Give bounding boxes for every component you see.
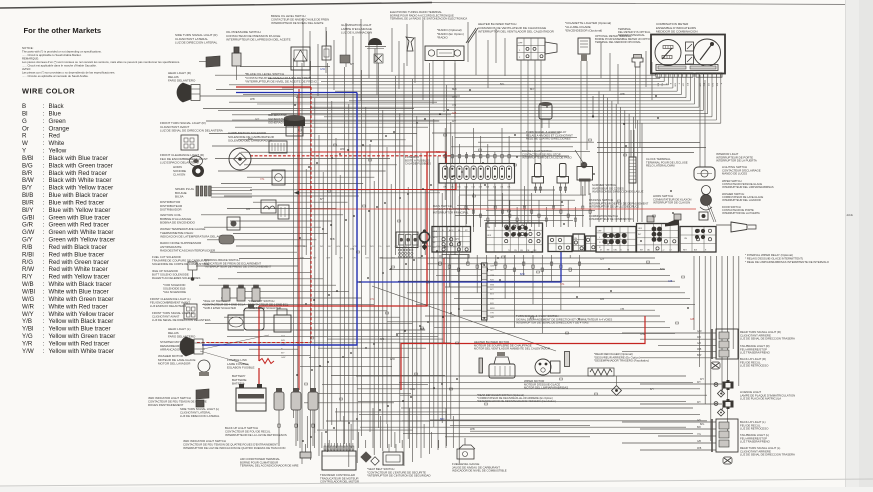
svg-text:G/W: G/W <box>320 68 326 71</box>
svg-text:Blue: Blue <box>49 110 62 117</box>
svg-text:*10A SOLENOIDE: *10A SOLENOIDE <box>163 290 186 294</box>
svg-text:G/Y: G/Y <box>255 118 260 121</box>
svg-text:INTERRUPTEUR DE LAPRESION DEL: INTERRUPTEUR DE LAPRESION DEL ACEITE <box>226 38 291 42</box>
svg-text::: : <box>43 340 45 347</box>
svg-text:Bl/B: Bl/B <box>22 192 33 199</box>
svg-text:W/R: W/R <box>22 303 35 310</box>
svg-text:LUZ DE SENAL DE DIRECCION DELA: LUZ DE SENAL DE DIRECCION DELANTERA <box>160 129 223 133</box>
svg-text:WIRE COLOR: WIRE COLOR <box>22 87 75 96</box>
svg-text:B/G: B/G <box>361 246 365 248</box>
svg-text:ACC: ACC <box>449 229 454 232</box>
svg-text:*DESEMPANADOR DE DESINTEGRADOR: *DESEMPANADOR DE DESINTEGRADOR TRASERO (… <box>477 399 556 403</box>
svg-text:B/W: B/W <box>386 246 390 248</box>
svg-text:G/Y: G/Y <box>600 258 605 261</box>
svg-text:Y/G: Y/G <box>281 336 285 338</box>
svg-text::: : <box>43 162 45 169</box>
svg-text:B/G: B/G <box>490 294 494 296</box>
svg-text:Green with White tracer: Green with White tracer <box>49 229 114 236</box>
svg-text:Y/G: Y/G <box>378 246 382 248</box>
svg-text:Bl/B: Bl/B <box>452 88 457 91</box>
svg-text:MOTOR DEL VENTILADOR AMBIENTE: MOTOR DEL VENTILADOR AMBIENTE DEL CALENT… <box>474 347 550 351</box>
svg-text:ACC: ACC <box>433 236 438 239</box>
svg-text:INTERRUPTEUR DEL LIMPIAPARABRI: INTERRUPTEUR DEL LIMPIAPARABRISAS <box>722 185 774 189</box>
svg-text:R/G: R/G <box>22 259 33 266</box>
svg-text:B/G: B/G <box>500 83 504 86</box>
svg-text:Blue with Yellow tracer: Blue with Yellow tracer <box>49 207 111 214</box>
svg-text:G/R: G/R <box>418 258 422 260</box>
svg-text::: : <box>43 222 45 229</box>
svg-text:INVERSION DE DIRECCION DE LA L: INVERSION DE DIRECCION DE LA LUZ <box>592 190 644 194</box>
svg-text::: : <box>43 251 45 258</box>
svg-text:G/B: G/B <box>668 280 673 283</box>
svg-text:Bl/R: Bl/R <box>22 199 34 206</box>
svg-text:Y/B: Y/B <box>490 298 494 300</box>
svg-text:BOBINA DE ENCENDIDO: BOBINA DE ENCENDIDO <box>160 221 196 225</box>
svg-text:Y/R: Y/R <box>490 313 494 315</box>
svg-text:B/Y: B/Y <box>22 185 32 192</box>
svg-text:INTERRUPTOR DE LA PUERTA: INTERRUPTOR DE LA PUERTA <box>716 159 757 163</box>
svg-text::: : <box>43 133 45 140</box>
svg-text::: : <box>43 199 45 206</box>
svg-text:Red with Black tracer: Red with Black tracer <box>49 244 107 251</box>
svg-text:B/G: B/G <box>22 162 33 169</box>
svg-text:*DESEMPANADOR TRASERO (Faculta: *DESEMPANADOR TRASERO (Facultativo) <box>594 359 649 363</box>
svg-text:Green with Yellow tracer: Green with Yellow tracer <box>49 237 116 244</box>
svg-text:R/Y: R/Y <box>700 378 705 381</box>
svg-text::: : <box>43 155 45 162</box>
svg-text::: : <box>43 110 45 117</box>
svg-text:W/G: W/G <box>22 296 35 303</box>
svg-text:LUZ TRASERA/FRENO: LUZ TRASERA/FRENO <box>740 440 771 444</box>
svg-text:Red with Green tracer: Red with Green tracer <box>49 259 110 266</box>
svg-text:Red with Yellow tracer: Red with Yellow tracer <box>49 274 110 281</box>
svg-text:W/B: W/B <box>22 281 34 288</box>
svg-text:RELE DE CUATRO DIRECCIONES: RELE DE CUATRO DIRECCIONES <box>526 137 571 141</box>
svg-text:LUZ DE DIRECCION LATERAL: LUZ DE DIRECCION LATERAL <box>175 41 218 45</box>
svg-text:Yellow with Green tracer: Yellow with Green tracer <box>49 333 116 340</box>
svg-text:G/Bl: G/Bl <box>22 214 34 221</box>
svg-text:Y/B: Y/B <box>22 318 32 325</box>
svg-text:OFF: OFF <box>487 235 492 237</box>
svg-text:TL: TL <box>508 250 510 252</box>
svg-text:Yellow with Black tracer: Yellow with Black tracer <box>49 318 114 325</box>
svg-text:R/Bl: R/Bl <box>22 251 34 258</box>
svg-text:G/W: G/W <box>410 388 416 391</box>
svg-text::: : <box>43 214 45 221</box>
svg-text:B/G: B/G <box>703 83 705 87</box>
svg-text:RELO LATERAL/OMNI: RELO LATERAL/OMNI <box>646 164 675 168</box>
svg-text:R/B: R/B <box>22 244 32 251</box>
svg-text:Bl/B: Bl/B <box>330 238 335 241</box>
svg-text:Or: Or <box>22 125 29 132</box>
svg-text:MEDIDOR DE COMBINACION: MEDIDOR DE COMBINACION <box>656 30 698 34</box>
svg-text:INDICACION DE LATEMPERATURA DE: INDICACION DE LATEMPERATURA DEL AGUA <box>160 235 225 239</box>
svg-text:INTERRUPTOR DE LA PUERTA: INTERRUPTOR DE LA PUERTA <box>722 211 760 215</box>
svg-text:TERMINAL DE LA RADIO DE SINTON: TERMINAL DE LA RADIO DE SINTONIZACION EL… <box>390 17 467 21</box>
svg-text:Y/B: Y/B <box>620 308 624 311</box>
svg-text:G/B: G/B <box>490 317 494 319</box>
svg-text:Bl: Bl <box>22 110 28 117</box>
svg-text::: : <box>43 281 45 288</box>
svg-text:INTERRUPTEUR DE LA LUZ DE PASO: INTERRUPTEUR DE LA LUZ DE PASO <box>522 156 573 160</box>
svg-text:MOTOR DEL LAVADOR: MOTOR DEL LAVADOR <box>158 362 191 366</box>
svg-text:Y/B: Y/B <box>350 248 354 251</box>
svg-text:R/Y: R/Y <box>22 274 32 281</box>
svg-text:R/Y: R/Y <box>697 402 701 404</box>
svg-text:CONTACTEUR DE NIVEAU D'HUILE D: CONTACTEUR DE NIVEAU D'HUILE DE FREIN <box>271 17 329 21</box>
svg-text:B/Y: B/Y <box>281 353 285 355</box>
svg-text:Orange: Orange <box>49 125 70 132</box>
svg-text:W/B: W/B <box>403 246 407 248</box>
svg-text:R/B: R/B <box>697 337 701 339</box>
svg-text::: : <box>43 177 45 184</box>
svg-text:MANDO DE LUCES: MANDO DE LUCES <box>722 172 747 176</box>
svg-text:G/Y: G/Y <box>480 263 485 266</box>
svg-text:Blue with Red tracer: Blue with Red tracer <box>49 199 105 206</box>
svg-text:TERMINAL DEL ACONDICIONADOR DE: TERMINAL DEL ACONDICIONADOR DE AIRE <box>240 464 299 468</box>
svg-text:*INTERRUPTEUR DE FRENO DE STAT: *INTERRUPTEUR DE FRENO DE STATIONNEMENT <box>204 265 271 269</box>
svg-text:G/R: G/R <box>22 222 34 229</box>
svg-text::: : <box>43 170 45 177</box>
svg-text:FARO DELANTERO: FARO DELANTERO <box>168 79 196 83</box>
svg-text:INTERRUPTOR DE CLAXON: INTERRUPTOR DE CLAXON <box>653 201 690 205</box>
svg-text:INTERRUPTEUR DEL LAVADOR: INTERRUPTEUR DEL LAVADOR <box>722 198 761 202</box>
svg-text:R/Y: R/Y <box>455 238 460 241</box>
svg-text:INTERRUPTOR DE LUZ DE INDICACI: INTERRUPTOR DE LUZ DE INDICACION DE QUAT… <box>183 446 285 450</box>
svg-text:GENERADOR CA: GENERADOR CA <box>268 121 292 125</box>
svg-text:Yellow with Blue tracer: Yellow with Blue tracer <box>49 326 111 333</box>
svg-text:White with Blue tracer: White with Blue tracer <box>49 289 109 296</box>
svg-text:G/B: G/B <box>697 343 701 345</box>
svg-text:Red: Red <box>49 133 61 140</box>
svg-text:*INTERRUPTOR DE CINTURON DE SE: *INTERRUPTOR DE CINTURON DE SEGURIDAD <box>367 474 431 478</box>
svg-text:LUZ TRASERA/FRENO: LUZ TRASERA/FRENO <box>740 351 771 355</box>
svg-text:White with Green tracer: White with Green tracer <box>49 296 114 303</box>
svg-text:IG: IG <box>433 242 436 244</box>
svg-text:Black with White tracer: Black with White tracer <box>49 177 112 184</box>
svg-text:BRAKE OIL LEVEL SWITCH: BRAKE OIL LEVEL SWITCH <box>271 14 306 18</box>
svg-text:W/R: W/R <box>390 358 395 361</box>
svg-text:LUZ DE SENAL DE DIRECCION DELA: LUZ DE SENAL DE DIRECCION DELANTERA <box>152 318 211 322</box>
svg-text:Black with Yellow tracer: Black with Yellow tracer <box>49 185 114 192</box>
svg-text::: : <box>43 296 45 303</box>
svg-text:For the other Markets: For the other Markets <box>24 26 102 35</box>
svg-text:White with Yellow tracer: White with Yellow tracer <box>49 311 114 318</box>
svg-text::: : <box>43 348 45 355</box>
svg-text::: : <box>43 244 45 251</box>
svg-text:CAJA DE FUSIBLES: CAJA DE FUSIBLES <box>405 162 431 166</box>
svg-text:LUZ DE SENAL DE DIRECCION TRAS: LUZ DE SENAL DE DIRECCION TRASERA <box>740 453 795 457</box>
svg-text:Bl/Y: Bl/Y <box>530 88 535 91</box>
svg-text:INTERRUPTEUR DE COMBINATION: INTERRUPTEUR DE COMBINATION <box>589 217 633 221</box>
svg-text:...... Circuit est applicable: ...... Circuit est applicable dans le ma… <box>22 64 97 68</box>
svg-text::: : <box>43 289 45 296</box>
svg-text:R/W: R/W <box>22 266 34 273</box>
svg-text:Y/G: Y/G <box>370 298 374 301</box>
svg-text:Bl/Y: Bl/Y <box>440 418 445 421</box>
svg-text:Yellow with Red tracer: Yellow with Red tracer <box>49 340 110 347</box>
svg-text:G/B: G/B <box>690 318 695 321</box>
svg-text:...... Circuito es aplicable a: ...... Circuito es aplicable al mercado … <box>22 74 89 78</box>
svg-text:Y/R: Y/R <box>22 340 33 347</box>
svg-text:*INTERRUPTEUR DE NIVEL DE ACEI: *INTERRUPTEUR DE NIVEL DE ACEITE DE FREN… <box>245 80 318 84</box>
svg-text:R/B: R/B <box>600 298 605 301</box>
svg-text::: : <box>43 118 45 125</box>
svg-text::: : <box>43 303 45 310</box>
svg-text:B/W: B/W <box>405 258 409 260</box>
svg-text:W/R: W/R <box>379 258 383 260</box>
svg-text:Black: Black <box>49 103 65 110</box>
svg-text:G/W: G/W <box>640 333 646 336</box>
svg-text:R/B: R/B <box>246 208 251 211</box>
svg-text:+1: +1 <box>655 250 657 252</box>
svg-text:Bl/B: Bl/B <box>420 328 425 331</box>
svg-text::: : <box>43 185 45 192</box>
svg-text:R: R <box>22 133 27 140</box>
svg-text:G/R: G/R <box>395 246 399 248</box>
svg-text:W/R: W/R <box>453 246 457 248</box>
svg-text:R/Y: R/Y <box>490 289 494 291</box>
svg-text:Y/G: Y/G <box>697 434 701 436</box>
svg-text:W/B: W/B <box>300 258 304 260</box>
svg-text:G/Y: G/Y <box>22 237 33 244</box>
svg-text::: : <box>43 140 45 147</box>
svg-text:* RELE DE LIMPIAPARABRISAS INT: * RELE DE LIMPIAPARABRISAS INTERMITENTE … <box>745 260 830 264</box>
svg-text::: : <box>43 266 45 273</box>
svg-text:RADIOESTATICASCHUNTERDRUCKER: RADIOESTATICASCHUNTERDRUCKER <box>160 249 216 253</box>
svg-text:G/B: G/B <box>697 441 701 443</box>
svg-text:B/W: B/W <box>660 268 665 271</box>
svg-text:Black with Blue tracer: Black with Blue tracer <box>49 155 109 162</box>
svg-text:G/W: G/W <box>420 246 424 248</box>
svg-text::: : <box>43 125 45 132</box>
svg-text:MOTOR DEL LIMPIAPARABRISAS: MOTOR DEL LIMPIAPARABRISAS <box>524 386 568 390</box>
svg-text:DEL: DEL <box>614 250 618 252</box>
svg-text:BUJIA: BUJIA <box>175 195 184 199</box>
svg-text:Yellow with White tracer: Yellow with White tracer <box>49 348 114 355</box>
svg-text:CLAXON: CLAXON <box>173 173 185 177</box>
svg-text:B/W: B/W <box>22 177 34 184</box>
svg-text:G/Y: G/Y <box>697 420 701 422</box>
svg-text:LUZ DE PLACA DE MATRICULA: LUZ DE PLACA DE MATRICULA <box>740 397 781 401</box>
svg-text:Y: Y <box>22 148 26 155</box>
svg-text:Y/G: Y/G <box>260 178 264 181</box>
svg-text:B/Y: B/Y <box>320 198 324 201</box>
svg-text:Y/R: Y/R <box>353 246 357 248</box>
svg-text:B/Y: B/Y <box>350 63 354 66</box>
svg-text:W/B: W/B <box>490 284 495 286</box>
svg-text:TENSION INTEGRAAL: TENSION INTEGRAAL <box>618 33 646 37</box>
svg-text:B/R: B/R <box>697 427 701 429</box>
svg-text:Red with Blue tracer: Red with Blue tracer <box>49 251 105 258</box>
svg-text::: : <box>43 333 45 340</box>
svg-text:W/B: W/B <box>431 258 435 260</box>
svg-text:TERMINAL DEL MEDIDOR OPCIONAL: TERMINAL DEL MEDIDOR OPCIONAL <box>595 40 641 44</box>
svg-text:B/Y: B/Y <box>650 388 654 391</box>
svg-text:LUZ DE DIRECCION LATERAL: LUZ DE DIRECCION LATERAL <box>180 414 220 418</box>
svg-text::: : <box>43 259 45 266</box>
svg-text:B/R: B/R <box>490 303 494 305</box>
svg-text:Black with Green tracer: Black with Green tracer <box>49 162 113 169</box>
svg-text:OFF: OFF <box>518 43 523 45</box>
svg-text:W/R: W/R <box>340 148 345 151</box>
svg-text:B: B <box>22 103 26 110</box>
svg-text::: : <box>43 148 45 155</box>
svg-text:R/B: R/B <box>436 151 440 154</box>
svg-text:Y/B: Y/B <box>452 104 456 107</box>
svg-text:INTERRUPTOR DE LA LUZ DE CRUCE: INTERRUPTOR DE LA LUZ DE CRUCE <box>589 205 639 209</box>
svg-text:W/B: W/B <box>697 349 702 351</box>
svg-text:W/Y: W/Y <box>22 311 34 318</box>
svg-text:INTERRUPTOR DEL VENTILADOR DEL: INTERRUPTOR DEL VENTILADOR DEL CALENTADO… <box>478 30 555 34</box>
svg-text:W/B: W/B <box>620 93 625 96</box>
svg-text:W/B: W/B <box>470 428 475 431</box>
svg-text:Bl/Y: Bl/Y <box>22 207 33 214</box>
svg-text:Green: Green <box>49 118 67 125</box>
svg-text:B/G: B/G <box>366 258 370 260</box>
svg-text:LUZ DE SENAL DE DIRECCION TRAS: LUZ DE SENAL DE DIRECCION TRASERA <box>740 337 795 341</box>
svg-text:W/B: W/B <box>697 448 702 450</box>
svg-text:Green with Blue tracer: Green with Blue tracer <box>49 214 111 221</box>
svg-text:G/Y: G/Y <box>490 270 494 272</box>
svg-text:G: G <box>22 118 27 125</box>
svg-text:LUZ DE RETROCESO: LUZ DE RETROCESO <box>740 364 769 368</box>
svg-text:R/B: R/B <box>490 280 494 282</box>
svg-text:Y/G: Y/G <box>661 83 663 87</box>
svg-text::: : <box>43 274 45 281</box>
svg-text:Blue with Black tracer: Blue with Black tracer <box>49 192 109 199</box>
svg-text:B/W: B/W <box>303 246 307 248</box>
svg-text:G/W: G/W <box>337 246 341 248</box>
svg-text:W/B: W/B <box>250 98 255 101</box>
svg-text:R/Y: R/Y <box>697 382 701 384</box>
svg-text:INDICADOR DE NIVEL DE COMBUSTI: INDICADOR DE NIVEL DE COMBUSTIBLE <box>452 469 507 473</box>
svg-text:W/R: W/R <box>452 96 457 99</box>
svg-text:Black with Red tracer: Black with Red tracer <box>49 170 107 177</box>
svg-text:*SUB 4 ETER SCHALTER: *SUB 4 ETER SCHALTER <box>203 306 236 310</box>
svg-text:ARRANCADOR: ARRANCADOR <box>160 348 182 352</box>
svg-text::: : <box>43 207 45 214</box>
svg-text:B/G: B/G <box>700 423 704 426</box>
svg-text:G/W: G/W <box>326 258 330 260</box>
svg-text:Y/Bl: Y/Bl <box>22 326 33 333</box>
svg-text:B/W: B/W <box>520 273 525 276</box>
svg-text:B/R: B/R <box>22 170 33 177</box>
svg-text:Y/G: Y/G <box>295 246 299 248</box>
svg-text:W: W <box>22 140 28 147</box>
svg-text:G/B: G/B <box>452 112 457 115</box>
svg-text:*RADIO: *RADIO <box>437 36 448 40</box>
svg-text:Red with White tracer: Red with White tracer <box>49 266 108 273</box>
svg-text:LUZ DE RETROCESO: LUZ DE RETROCESO <box>740 427 769 431</box>
svg-text:R/B: R/B <box>281 340 285 342</box>
svg-text:Y/R: Y/R <box>352 258 356 260</box>
svg-text::: : <box>43 311 45 318</box>
svg-text:PIL: PIL <box>514 250 517 252</box>
svg-text:Y/G: Y/G <box>22 333 33 340</box>
svg-text:INTERRUPTOR PRINCIPAL: INTERRUPTOR PRINCIPAL <box>433 210 469 214</box>
svg-text::: : <box>43 326 45 333</box>
svg-text:W/B: W/B <box>320 246 324 248</box>
svg-text:White with Black tracer: White with Black tracer <box>49 281 112 288</box>
svg-text:Yellow: Yellow <box>49 148 67 155</box>
svg-text:DISTRIBUIDOR: DISTRIBUIDOR <box>160 208 182 212</box>
svg-text:Y/R: Y/R <box>436 246 440 248</box>
svg-text::: : <box>43 318 45 325</box>
svg-text:OFF: OFF <box>433 231 438 233</box>
svg-text::: : <box>43 237 45 244</box>
svg-text:ON: ON <box>487 227 491 229</box>
svg-text:R/Y: R/Y <box>452 120 457 123</box>
svg-text:INTERRUPTEUR DE NIVEAU DEL ACE: INTERRUPTEUR DE NIVEAU DEL ACEITE <box>271 21 324 25</box>
svg-text:Y/Bl: Y/Bl <box>490 275 495 277</box>
svg-text:LUZ ESPACIO DELANTERO: LUZ ESPACIO DELANTERO <box>150 304 187 308</box>
svg-text:Green with Red tracer: Green with Red tracer <box>49 222 110 229</box>
svg-text:CONTROLADOR DEL MOTOR: CONTROLADOR DEL MOTOR <box>320 480 359 484</box>
svg-text:W/G: W/G <box>711 83 713 87</box>
svg-text:SOLENOIDE DE CORTE DE COMBUSTI: SOLENOIDE DE CORTE DE COMBUSTIBLE <box>152 262 209 266</box>
svg-text:ROUES D'ENTRAINEMENT: ROUES D'ENTRAINEMENT <box>148 403 184 407</box>
svg-text::: : <box>43 103 45 110</box>
svg-text:W/Bl: W/Bl <box>22 289 35 296</box>
svg-text:B/Bl: B/Bl <box>22 155 33 162</box>
svg-text:LUZ DE ILUMINACION: LUZ DE ILUMINACION <box>341 31 372 35</box>
svg-text:W/R: W/R <box>370 246 374 248</box>
svg-text::: : <box>43 229 45 236</box>
svg-text:Y/W: Y/W <box>22 348 34 355</box>
svg-text:IG: IG <box>458 230 461 232</box>
svg-text:R/B: R/B <box>380 338 385 341</box>
svg-text:+2: +2 <box>662 250 664 252</box>
svg-text:Y/G: Y/G <box>560 283 564 286</box>
svg-text::: : <box>43 192 45 199</box>
svg-text:*ENCENDEDOR (Opcional): *ENCENDEDOR (Opcional) <box>565 29 602 33</box>
svg-text:ESLABON FUSIBLE: ESLABON FUSIBLE <box>227 366 255 370</box>
svg-text:White with Red tracer: White with Red tracer <box>49 303 108 310</box>
svg-text:INTERRUPTEUR DE LA LUZ DE RETR: INTERRUPTEUR DE LA LUZ DE RETROCESOS <box>225 433 287 437</box>
svg-text:White: White <box>49 140 65 147</box>
svg-text:G/R: G/R <box>312 246 316 248</box>
svg-text:B/W: B/W <box>248 138 253 141</box>
svg-text:G/W: G/W <box>22 229 35 236</box>
svg-text:FARO DELANTERO: FARO DELANTERO <box>168 335 196 339</box>
svg-text:-RAJE: -RAJE <box>846 214 853 217</box>
svg-text:INTERRUPTOR DE SENAL DE DIRECC: INTERRUPTOR DE SENAL DE DIRECCION Y DE 4… <box>516 321 589 325</box>
svg-text:Y/G: Y/G <box>392 258 396 260</box>
svg-text:B/W: B/W <box>657 83 659 87</box>
